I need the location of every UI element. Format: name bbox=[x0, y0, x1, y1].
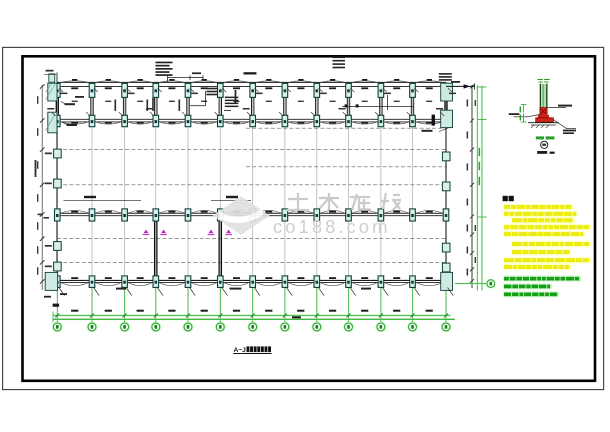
svg-text:A~J: A~J bbox=[234, 347, 247, 354]
svg-text:co188.com: co188.com bbox=[273, 216, 391, 237]
